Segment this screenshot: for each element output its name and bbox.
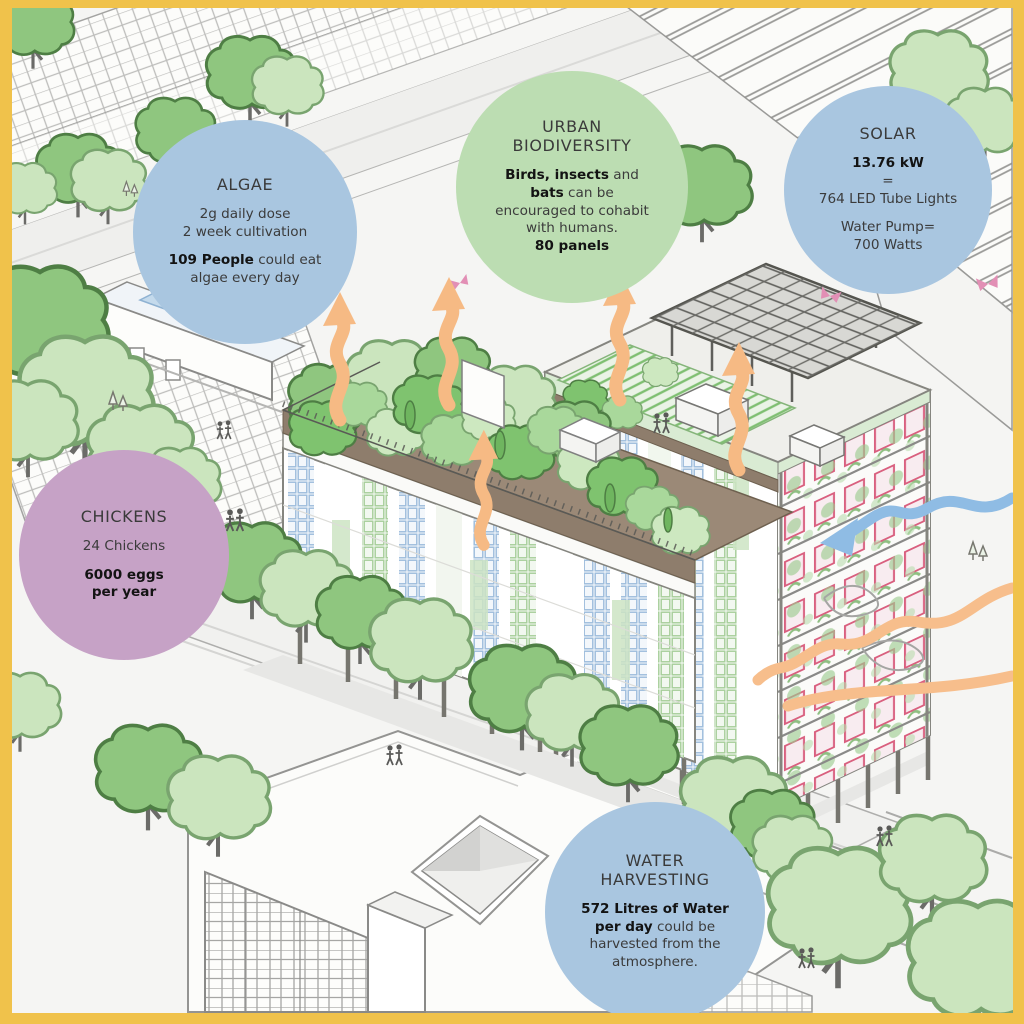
biodiversity-title: URBAN BIODIVERSITY [512, 118, 631, 156]
biodiversity-line: bats can be [530, 185, 614, 203]
algae-title: ALGAE [217, 176, 273, 195]
chickens-bubble: CHICKENS 24 Chickens 6000 eggs per year [19, 450, 229, 660]
frame-border-right [1013, 0, 1024, 1024]
water-line: per day could be [595, 919, 715, 937]
frame-border-left [0, 0, 12, 1024]
solar-line: = [882, 173, 893, 191]
water-harvesting-bubble: WATER HARVESTING 572 Litres of Water per… [545, 802, 765, 1022]
algae-line: algae every day [190, 270, 299, 288]
biodiversity-line: with humans. [526, 220, 618, 238]
urban-biodiversity-bubble: URBAN BIODIVERSITY Birds, insects and ba… [456, 71, 688, 303]
water-line: 572 Litres of Water [581, 901, 729, 919]
biodiversity-line: encouraged to cohabit [495, 203, 649, 221]
solar-line: Water Pump= [841, 219, 935, 237]
water-line: atmosphere. [612, 954, 698, 972]
algae-bubble: ALGAE 2g daily dose 2 week cultivation 1… [133, 120, 357, 344]
biodiversity-line: 80 panels [535, 238, 609, 256]
chickens-line: 24 Chickens [83, 538, 165, 556]
solar-line: 13.76 kW [852, 155, 924, 173]
water-line: harvested from the [590, 936, 721, 954]
biodiversity-line: Birds, insects and [505, 167, 639, 185]
chickens-line: 6000 eggs [84, 567, 163, 585]
water-title: WATER HARVESTING [600, 852, 709, 890]
chickens-title: CHICKENS [81, 508, 168, 527]
solar-line: 764 LED Tube Lights [819, 191, 957, 209]
algae-line: 109 People could eat [169, 252, 322, 270]
solar-title: SOLAR [859, 125, 916, 144]
chickens-line: per year [92, 584, 156, 602]
frame-border-top [0, 0, 1024, 8]
solar-line: 700 Watts [854, 237, 923, 255]
algae-line: 2 week cultivation [183, 224, 307, 242]
solar-bubble: SOLAR 13.76 kW = 764 LED Tube Lights Wat… [784, 86, 992, 294]
frame-border-bottom [0, 1013, 1024, 1024]
algae-line: 2g daily dose [200, 206, 291, 224]
